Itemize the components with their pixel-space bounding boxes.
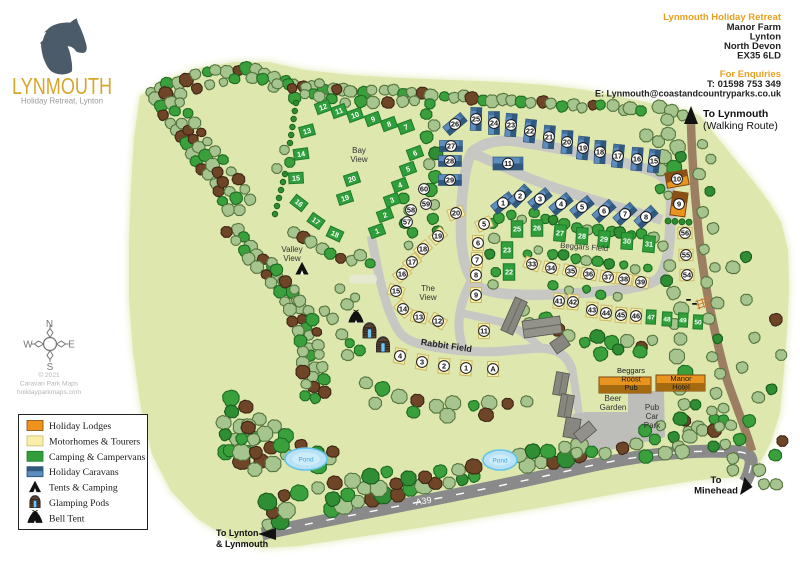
svg-text:37: 37 (604, 273, 612, 282)
svg-text:Pond: Pond (298, 457, 314, 464)
svg-text:44: 44 (602, 309, 611, 318)
svg-text:To Lynton: To Lynton (216, 528, 259, 538)
svg-text:34: 34 (547, 264, 556, 273)
svg-text:20: 20 (563, 138, 571, 147)
svg-text:8: 8 (474, 271, 478, 280)
svg-text:12: 12 (434, 317, 442, 326)
svg-text:11: 11 (504, 159, 512, 168)
svg-text:W: W (23, 340, 33, 351)
svg-text:27: 27 (447, 142, 455, 151)
svg-text:59: 59 (422, 200, 430, 209)
svg-text:5: 5 (580, 203, 584, 212)
svg-text:56: 56 (681, 229, 689, 238)
svg-text:18: 18 (419, 245, 427, 254)
svg-text:45: 45 (617, 311, 625, 320)
svg-text:22: 22 (526, 127, 534, 136)
svg-text:15: 15 (292, 173, 301, 182)
svg-text:15: 15 (392, 287, 400, 296)
svg-text:3: 3 (538, 195, 542, 204)
svg-text:To Lynmouth: To Lynmouth (703, 108, 768, 120)
svg-text:13: 13 (415, 313, 423, 322)
svg-text:& Lynmouth: & Lynmouth (216, 539, 268, 549)
svg-text:29: 29 (600, 234, 609, 244)
svg-text:48: 48 (663, 316, 671, 323)
svg-text:60: 60 (420, 185, 428, 194)
svg-text:3: 3 (420, 358, 424, 367)
svg-text:9: 9 (474, 291, 478, 300)
svg-text:58: 58 (407, 206, 415, 215)
svg-text:25: 25 (472, 115, 480, 124)
svg-text:10: 10 (673, 175, 681, 184)
svg-text:28: 28 (578, 231, 587, 240)
svg-text:A: A (490, 365, 496, 374)
svg-text:26: 26 (451, 120, 459, 129)
svg-text:42: 42 (569, 298, 577, 307)
svg-text:Camping & Campervans: Camping & Campervans (49, 452, 146, 463)
svg-text:22: 22 (505, 268, 513, 277)
svg-text:30: 30 (623, 236, 632, 245)
svg-text:Bell Tent: Bell Tent (49, 513, 85, 524)
svg-text:19: 19 (579, 144, 587, 153)
svg-text:39: 39 (637, 278, 645, 287)
svg-text:36: 36 (585, 270, 593, 279)
svg-text:ValleyView: ValleyView (281, 245, 302, 263)
svg-text:5: 5 (482, 220, 486, 229)
svg-text:14: 14 (399, 305, 408, 314)
svg-text:7: 7 (475, 256, 479, 265)
svg-text:27: 27 (556, 228, 565, 238)
svg-text:To: To (711, 475, 722, 486)
svg-text:Motorhomes & Tourers: Motorhomes & Tourers (49, 436, 140, 447)
svg-text:47: 47 (647, 314, 655, 321)
svg-text:6: 6 (602, 207, 606, 216)
svg-text:25: 25 (513, 225, 521, 234)
svg-text:ManorHotel: ManorHotel (670, 374, 692, 392)
svg-text:Holiday Lodges: Holiday Lodges (49, 421, 111, 432)
svg-text:23: 23 (503, 246, 511, 255)
svg-text:7: 7 (623, 210, 627, 219)
svg-text:holidayparkmaps.com: holidayparkmaps.com (17, 389, 82, 396)
svg-text:23: 23 (507, 121, 515, 130)
svg-text:Glamping Pods: Glamping Pods (49, 498, 109, 509)
svg-text:1: 1 (501, 199, 505, 208)
svg-text:Caravan Park Maps: Caravan Park Maps (20, 381, 79, 388)
svg-text:1: 1 (464, 364, 468, 373)
svg-text:38: 38 (620, 275, 628, 284)
svg-text:11: 11 (480, 327, 488, 336)
svg-text:LYNMOUTH: LYNMOUTH (12, 73, 112, 99)
svg-text:26: 26 (533, 224, 541, 233)
svg-text:19: 19 (434, 232, 442, 241)
svg-text:17: 17 (408, 258, 416, 267)
svg-text:TheView: TheView (419, 284, 436, 302)
svg-text:2: 2 (442, 362, 446, 371)
svg-text:55: 55 (682, 251, 690, 260)
svg-text:41: 41 (555, 297, 563, 306)
svg-text:N: N (46, 319, 53, 330)
svg-text:EX35 6LD: EX35 6LD (737, 51, 781, 62)
svg-text:46: 46 (632, 312, 640, 321)
svg-text:BayView: BayView (350, 146, 367, 164)
svg-text:8: 8 (644, 213, 648, 222)
svg-text:20: 20 (452, 209, 460, 218)
svg-text:E: Lynmouth@coastandcountrypar: E: Lynmouth@coastandcountryparks.co.uk (595, 89, 782, 99)
svg-text:Minehead: Minehead (694, 486, 738, 497)
svg-text:Holiday Caravans: Holiday Caravans (49, 467, 119, 478)
svg-text:21: 21 (545, 133, 553, 142)
svg-text:54: 54 (683, 271, 692, 280)
svg-text:16: 16 (398, 270, 406, 279)
svg-text:Tents & Camping: Tents & Camping (49, 483, 118, 494)
svg-text:Pond: Pond (492, 458, 508, 465)
svg-text:18: 18 (596, 148, 604, 157)
svg-text:9: 9 (677, 200, 681, 209)
svg-text:2: 2 (518, 192, 522, 201)
svg-text:16: 16 (633, 155, 641, 164)
svg-text:43: 43 (588, 306, 596, 315)
svg-text:(Walking Route): (Walking Route) (703, 120, 778, 132)
svg-text:49: 49 (679, 317, 687, 324)
svg-text:E: E (68, 340, 75, 351)
svg-text:Holiday Retreat, Lynton: Holiday Retreat, Lynton (21, 97, 103, 106)
svg-text:6: 6 (476, 239, 480, 248)
svg-text:35: 35 (567, 267, 575, 276)
svg-text:© 2021: © 2021 (38, 371, 60, 379)
svg-text:17: 17 (614, 152, 622, 161)
svg-text:29: 29 (446, 176, 454, 185)
svg-text:50: 50 (694, 319, 702, 326)
svg-text:31: 31 (645, 239, 654, 249)
svg-text:57: 57 (403, 218, 411, 227)
svg-text:28: 28 (446, 157, 454, 166)
svg-text:24: 24 (490, 119, 499, 128)
svg-text:15: 15 (650, 157, 658, 166)
svg-text:33: 33 (528, 260, 536, 269)
